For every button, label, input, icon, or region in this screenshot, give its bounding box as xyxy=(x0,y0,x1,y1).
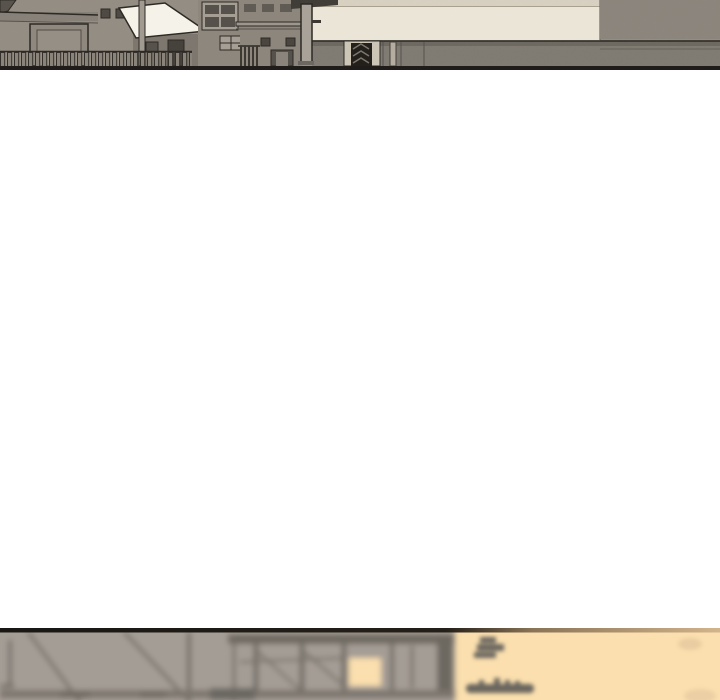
panel-gutter xyxy=(0,70,720,628)
blurred-scaffold-drawing xyxy=(0,628,720,700)
comic-scroll-page[interactable] xyxy=(0,0,720,700)
street-scene-drawing xyxy=(0,0,720,70)
comic-panel-top xyxy=(0,0,720,70)
comic-panel-bottom xyxy=(0,628,720,700)
